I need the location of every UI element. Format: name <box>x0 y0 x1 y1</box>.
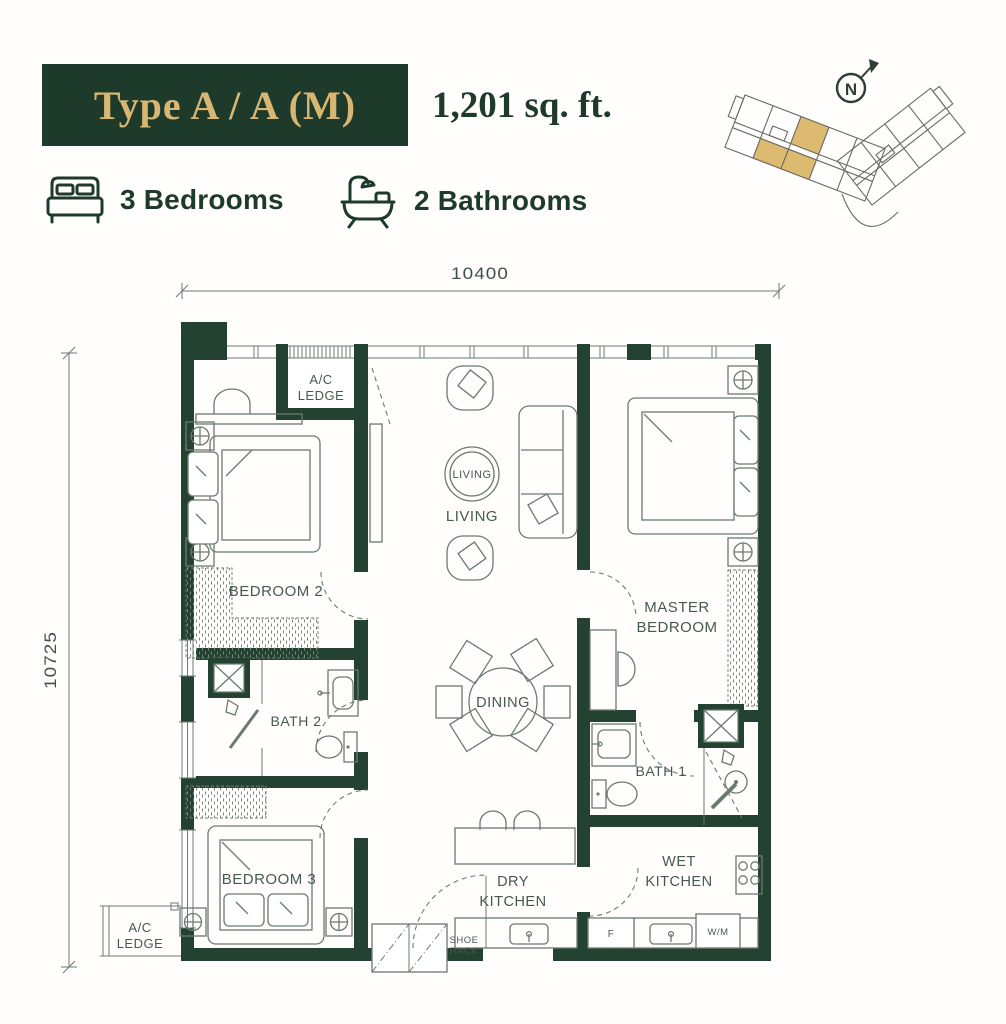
dimension-left: 10725 <box>41 347 77 973</box>
bathtub-icon <box>336 172 400 230</box>
compass-icon: N <box>837 59 879 102</box>
label-dining: DINING <box>476 695 530 711</box>
label-wet-kitchen-2: KITCHEN <box>645 874 712 890</box>
compass-north-label: N <box>845 80 857 99</box>
label-living: LIVING <box>446 508 498 525</box>
label-living-circle: LIVING <box>452 469 491 481</box>
unit-area: 1,201 sq. ft. <box>432 64 612 146</box>
dimension-left-value: 10725 <box>41 631 60 689</box>
unit-type-badge: Type A / A (M) <box>42 64 408 146</box>
label-master-1: MASTER <box>644 599 710 616</box>
key-plan: N <box>720 30 1006 240</box>
label-bedroom2: BEDROOM 2 <box>229 583 324 600</box>
key-plan-corner <box>842 194 898 226</box>
dimension-top-value: 10400 <box>451 264 509 283</box>
bedroom2-furniture <box>186 389 320 658</box>
label-dry-kitchen-2: KITCHEN <box>479 894 546 910</box>
top-window-band <box>227 343 758 361</box>
key-plan-left-wing <box>720 92 885 201</box>
label-washing-machine: W/M <box>707 927 728 938</box>
label-bath1: BATH 1 <box>636 763 687 779</box>
bathrooms-label: 2 Bathrooms <box>414 185 587 217</box>
label-shoe-rack-2: RACK <box>450 946 479 957</box>
bedrooms-label: 3 Bedrooms <box>120 184 284 216</box>
label-dry-kitchen-1: DRY <box>497 874 529 890</box>
label-master-2: BEDROOM <box>636 619 717 636</box>
dimension-top: 10400 <box>176 264 785 299</box>
label-bedroom3: BEDROOM 3 <box>222 871 317 888</box>
label-shoe-rack-1: SHOE <box>450 935 479 946</box>
floor-plan: A/C LEDGE BEDROOM 2 LIVING LIVING MASTER… <box>0 250 1006 1024</box>
bedrooms-feature: 3 Bedrooms <box>44 172 284 228</box>
label-ac-ledge-bottom-2: LEDGE <box>117 936 164 951</box>
label-wet-kitchen-1: WET <box>662 854 696 870</box>
ac-ledge-access-swing <box>372 368 390 424</box>
label-fridge: F <box>608 929 615 940</box>
label-ac-ledge-top-1: A/C <box>309 372 332 387</box>
unit-type-label: Type A / A (M) <box>94 82 356 129</box>
label-ac-ledge-top-2: LEDGE <box>298 388 345 403</box>
bathrooms-feature: 2 Bathrooms <box>336 172 587 230</box>
bedroom3-furniture <box>180 786 352 944</box>
floor-plan-page: Type A / A (M) 1,201 sq. ft. 3 Bedrooms <box>0 0 1006 1024</box>
label-ac-ledge-bottom-1: A/C <box>128 920 151 935</box>
bed-icon <box>44 172 106 228</box>
label-bath2: BATH 2 <box>271 713 322 729</box>
master-bedroom-furniture <box>590 366 758 710</box>
